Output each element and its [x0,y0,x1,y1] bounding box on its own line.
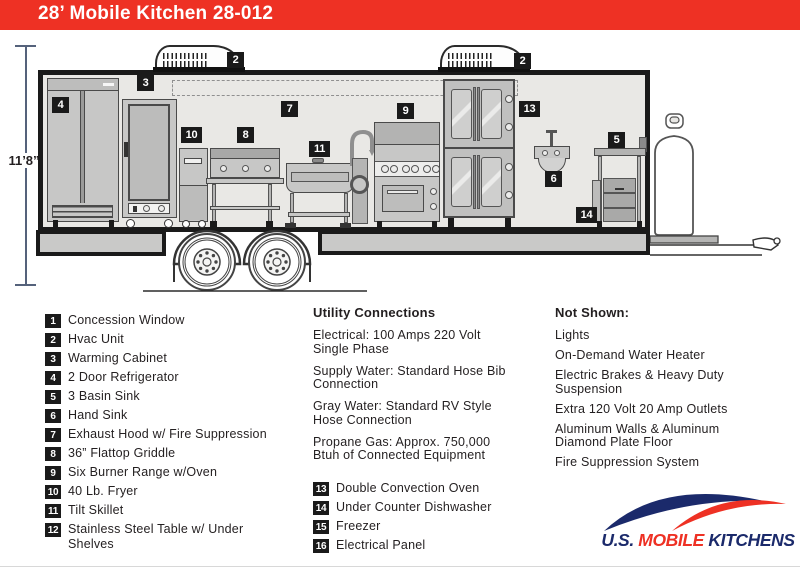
badge-tilt-skillet: 11 [309,141,330,157]
oven-knob [430,188,437,195]
item-number-badge: 16 [313,539,329,553]
burner-knob [423,165,431,173]
warming-cabinet-glass-door [128,104,170,201]
range-with-oven [374,122,440,222]
logo-kitchens: KITCHENS [708,530,794,550]
item-label: Under Counter Dishwasher [336,500,492,515]
legend-item: 836” Flattop Griddle [45,446,303,461]
item-label: Double Convection Oven [336,481,479,496]
burner-knob [381,165,389,173]
wheel [249,234,305,290]
stand-undershelf [210,206,280,210]
item-label: 3 Basin Sink [68,389,140,404]
item-number-badge: 12 [45,523,61,537]
item-number-badge: 2 [45,333,61,347]
foot [432,221,437,228]
item-label: Stainless Steel Table w/ Under Shelves [68,522,273,552]
tank-platform [650,236,718,243]
header-bar: 28’ Mobile Kitchen 28-012 [0,0,800,30]
badge-dishwasher: 14 [576,207,597,223]
legend-item: 11Tilt Skillet [45,503,303,518]
double-convection-oven [443,79,515,218]
legend-item: 12Stainless Steel Table w/ Under Shelves [45,522,303,552]
hand-sink-faucet [550,132,553,147]
burner-knob [432,165,440,173]
table-leg [637,156,641,222]
item-label: Warming Cabinet [68,351,167,366]
not-shown-item: Aluminum Walls & Aluminum Diamond Plate … [555,423,755,450]
item-label: Hvac Unit [68,332,124,347]
skillet-lid [291,172,349,182]
dimension-cap-bottom [15,284,36,286]
badge-hvac: 2 [514,53,531,69]
refrigerator-door-divider [80,91,85,203]
item-number-badge: 3 [45,352,61,366]
burner-knob [220,165,227,172]
caster-wheel [164,219,173,228]
wheels-and-fenders [135,228,375,296]
dishwasher-seam [604,207,635,209]
stand-leg [212,184,216,222]
propane-tank [655,136,693,235]
item-label: 40 Lb. Fryer [68,484,138,499]
foot [637,221,642,228]
legend-item: 9Six Burner Range w/Oven [45,465,303,480]
foot [109,220,114,228]
item-label: Exhaust Hood w/ Fire Suppression [68,427,267,442]
foot [597,221,602,228]
caster-wheel [182,220,190,228]
oven-door-handle [387,190,418,194]
legend-item: 1Concession Window [45,313,303,328]
control-switch [133,206,137,212]
utility-connections-heading: Utility Connections [313,305,543,320]
wheel [179,234,235,290]
logo-us: U.S. [601,530,633,550]
not-shown-item: On-Demand Water Heater [555,349,755,363]
badge-exhaust-hood: 7 [281,101,298,117]
dishwasher-handle [615,188,624,190]
legend-column-utilities: Utility Connections Electrical: 100 Amps… [313,305,543,557]
item-label: Concession Window [68,313,185,328]
item-number-badge: 14 [313,501,329,515]
convection-oven-upper [445,81,513,149]
item-number-badge: 11 [45,504,61,518]
foot [210,221,217,228]
item-label: Electrical Panel [336,538,425,553]
oven-glass-door [451,89,472,139]
flyer-page: 28’ Mobile Kitchen 28-012 11’8” [0,0,800,567]
foot [266,221,273,228]
control-knob [158,205,165,212]
item-number-badge: 5 [45,390,61,404]
oven-knob [505,163,513,171]
legend-item: 53 Basin Sink [45,389,303,404]
badge-griddle: 8 [237,127,254,143]
burner-knob [390,165,398,173]
not-shown-item: Extra 120 Volt 20 Amp Outlets [555,403,755,417]
oven-door-handle [473,155,476,209]
burner-knob [242,165,249,172]
legend-item: 3Warming Cabinet [45,351,303,366]
oven-door-handle [477,155,480,209]
logo-mobile: MOBILE [638,530,704,550]
not-shown-item: Lights [555,329,755,343]
hvac-louvers [163,53,207,59]
warming-cabinet-handle [124,142,128,157]
burner-knob [411,165,419,173]
page-title: 28’ Mobile Kitchen 28-012 [0,0,800,25]
griddle-stand-top [206,178,284,184]
item-number-badge: 10 [45,485,61,499]
legend-column-not-shown: Not Shown: Lights On-Demand Water Heater… [555,305,785,476]
badge-refrigerator: 4 [52,97,69,113]
item-label: Six Burner Range w/Oven [68,465,217,480]
legend-item: 15Freezer [313,519,543,534]
utility-line: Electrical: 100 Amps 220 Volt Single Pha… [313,329,513,356]
stand-leg [268,184,272,222]
item-number-badge: 1 [45,314,61,328]
hvac-louvers [448,53,492,59]
oven-knob [505,95,513,103]
legend-item: 7Exhaust Hood w/ Fire Suppression [45,427,303,442]
badge-warming-cabinet: 3 [137,75,154,91]
not-shown-item: Fire Suppression System [555,456,755,470]
badge-range: 9 [397,103,414,119]
item-label: 36” Flattop Griddle [68,446,175,461]
not-shown-item: Electric Brakes & Heavy Duty Suspension [555,369,755,396]
flattop-griddle [210,148,280,178]
griddle-plate [211,149,279,159]
caster-wheel [126,219,135,228]
tap [554,150,560,156]
oven-door-handle [477,87,480,141]
item-number-badge: 7 [45,428,61,442]
item-number-badge: 9 [45,466,61,480]
fryer-door [180,185,207,220]
stand-undershelf [288,212,350,217]
item-number-badge: 6 [45,409,61,423]
oven-glass-door [481,89,502,139]
legend-item: 14Under Counter Dishwasher [313,500,543,515]
propane-and-hitch [650,108,796,260]
item-label: Hand Sink [68,408,127,423]
not-shown-heading: Not Shown: [555,305,785,320]
item-label: Freezer [336,519,380,534]
item-label: 2 Door Refrigerator [68,370,179,385]
dimension-cap-top [15,45,36,47]
fryer-slot [184,158,202,164]
item-number-badge: 8 [45,447,61,461]
legend-item: 1040 Lb. Fryer [45,484,303,499]
refrigerator-handle [103,83,114,86]
foot [53,220,58,228]
oven-knob [505,191,513,199]
foot [448,218,454,228]
undercounter-dishwasher [603,178,636,222]
oven-knob [430,203,437,210]
oven-knob [505,123,513,131]
logo-text: U.S. MOBILE KITCHENS [598,530,798,551]
badge-hand-sink: 6 [545,171,562,187]
tap [542,150,548,156]
stand-leg [344,193,348,223]
burner-knob [402,165,410,173]
badge-fryer: 10 [181,127,202,143]
legend-item: 16Electrical Panel [313,538,543,553]
utility-line: Gray Water: Standard RV Style Hose Conne… [313,400,513,427]
badge-convection-oven: 13 [519,101,540,117]
legend-item: 6Hand Sink [45,408,303,423]
oven-door [382,185,424,212]
item-label: Tilt Skillet [68,503,123,518]
hand-sink-faucet-handle [546,130,557,133]
foot [505,218,511,228]
control-knob [143,205,150,212]
foot [377,221,382,228]
fryer [179,148,208,222]
skillet-handwheel [350,175,369,194]
utility-line: Supply Water: Standard Hose Bib Connecti… [313,365,513,392]
refrigerator-grill [52,205,113,218]
item-number-badge: 13 [313,482,329,496]
oven-door-handle [473,87,476,141]
caster-wheel [198,220,206,228]
legend-column-equipment: 1Concession Window 2Hvac Unit 3Warming C… [45,313,303,556]
logo-swoosh-icon [598,492,798,532]
burner-knob [264,165,271,172]
item-number-badge: 15 [313,520,329,534]
badge-hvac: 2 [227,52,244,68]
utility-line: Propane Gas: Approx. 750,000 Btuh of Con… [313,436,513,463]
company-logo: U.S. MOBILE KITCHENS [598,492,798,560]
coupler-ring [774,238,780,244]
sink-table-top [594,148,646,156]
item-number-badge: 4 [45,371,61,385]
range-top [375,123,439,145]
convection-oven-lower [445,151,513,216]
legend-item: 13Double Convection Oven [313,481,543,496]
warming-cabinet [122,99,177,218]
oven-glass-door [451,157,472,207]
oven-glass-door [481,157,502,207]
legend-item: 42 Door Refrigerator [45,370,303,385]
stand-leg [290,193,294,223]
badge-basin-sink: 5 [608,132,625,148]
dishwasher-seam [604,192,635,194]
legend-item: 2Hvac Unit [45,332,303,347]
